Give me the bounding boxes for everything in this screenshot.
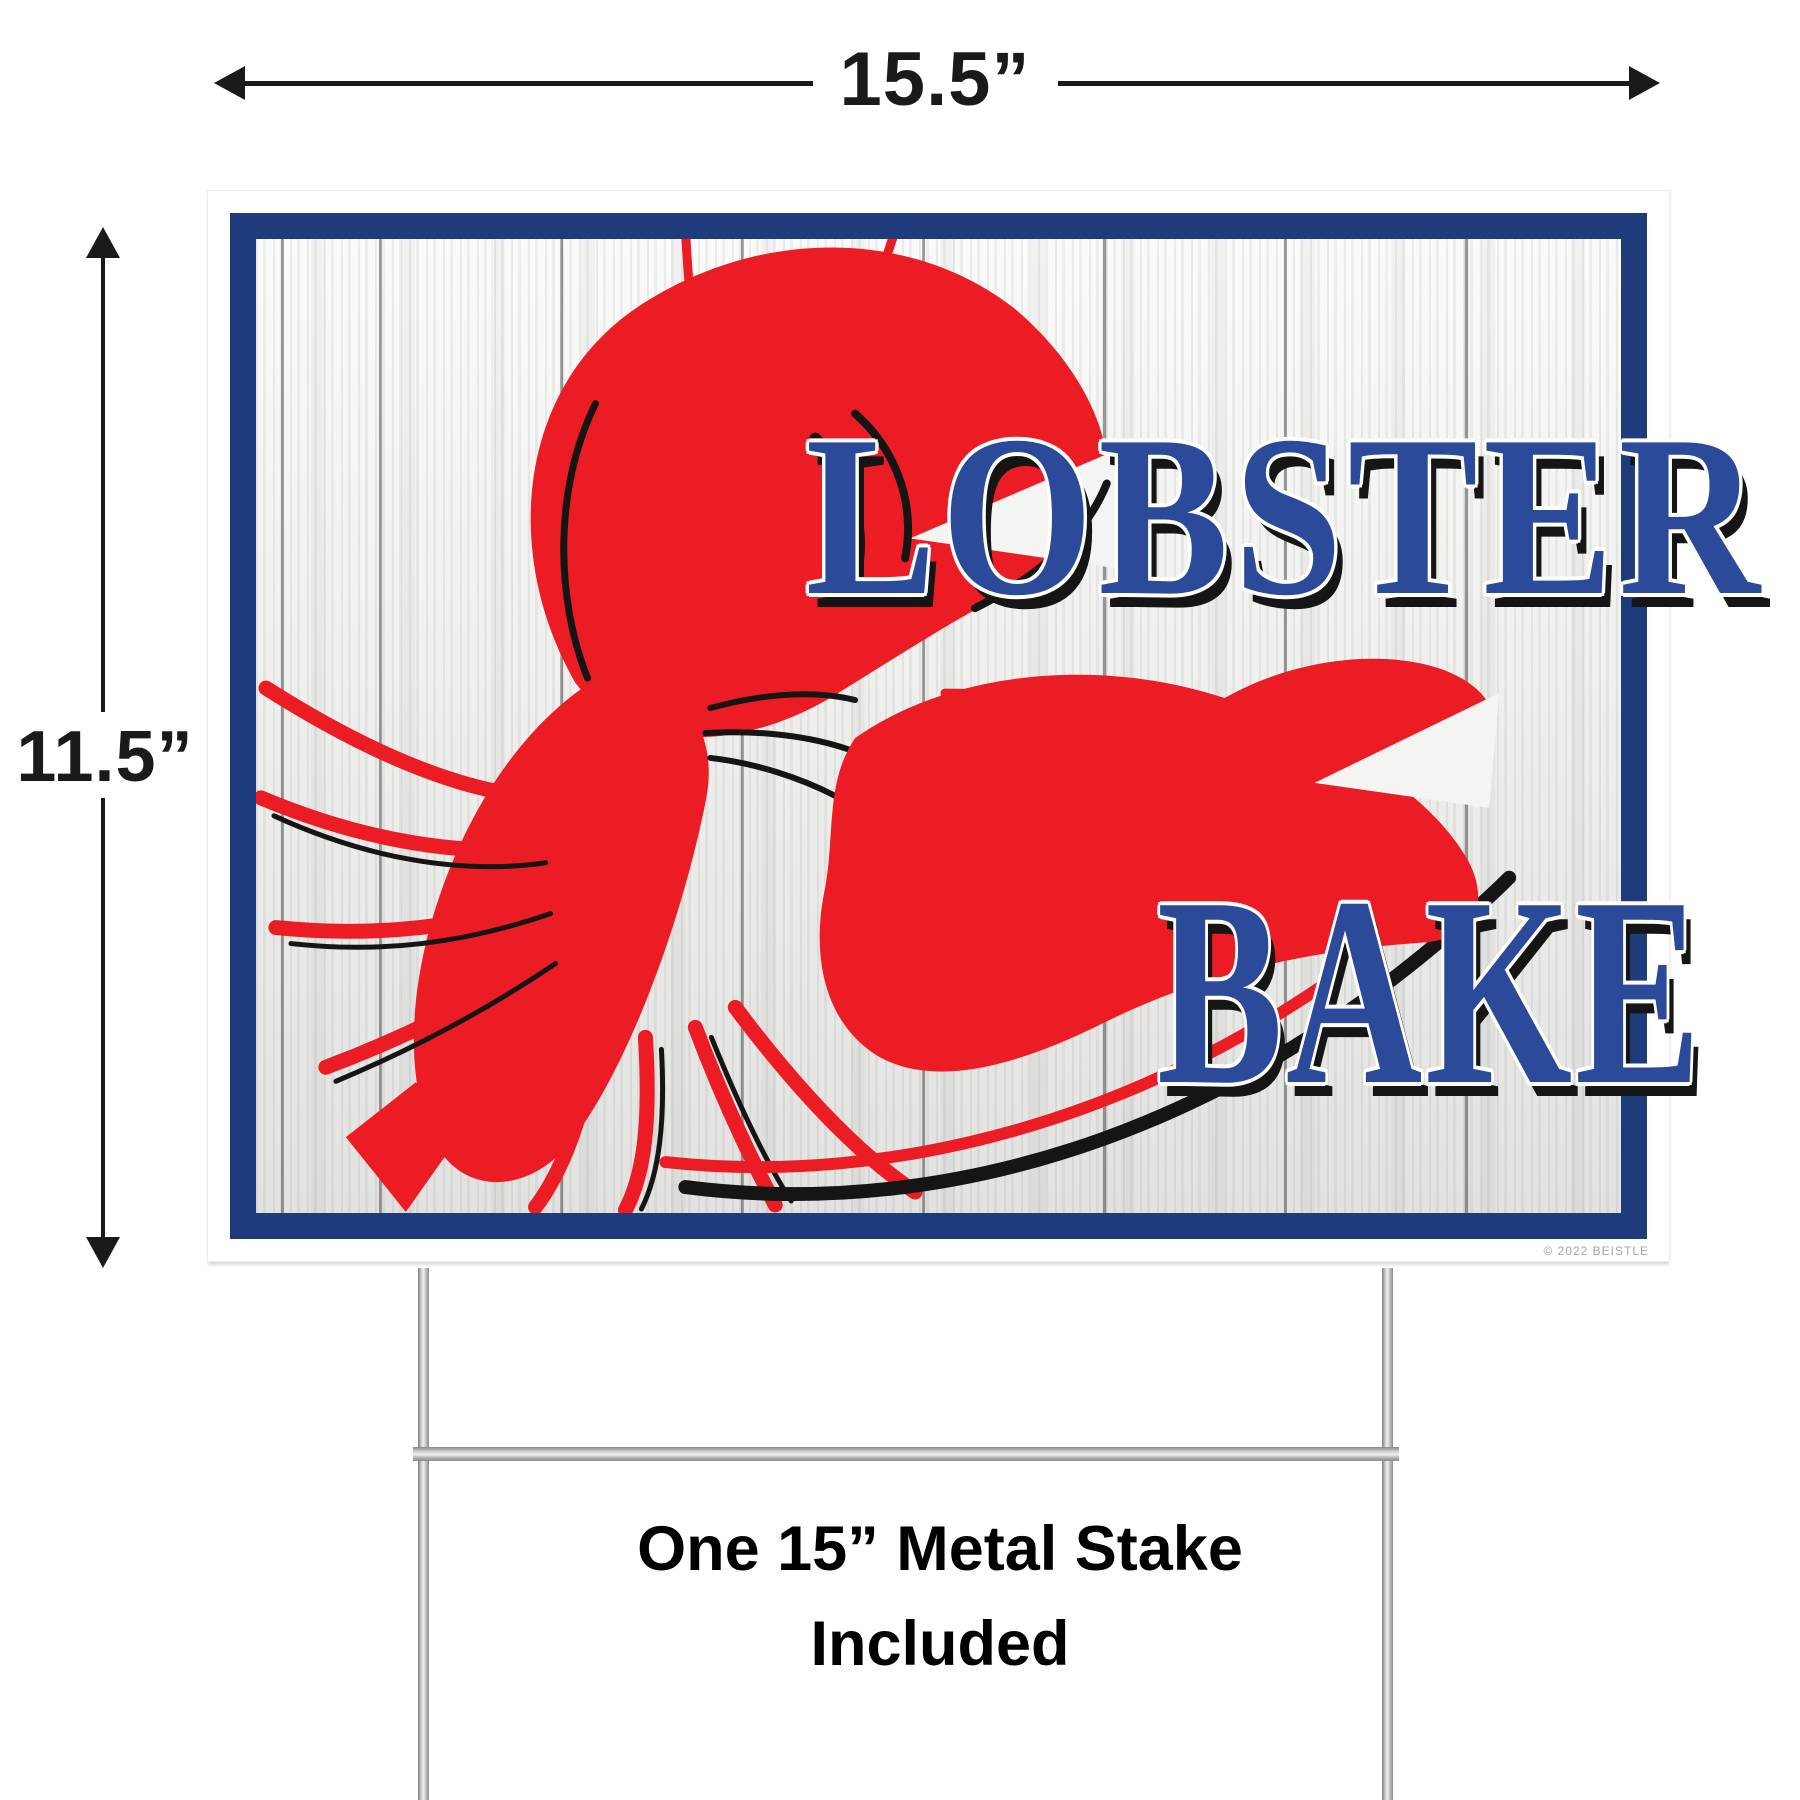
stake-caption-line1: One 15” Metal Stake bbox=[440, 1502, 1440, 1597]
arrowhead-up-icon bbox=[86, 227, 120, 258]
sign-title-bake: BAKE bbox=[1157, 857, 1521, 1127]
stake-left-leg bbox=[418, 1268, 429, 1800]
copyright-text: © 2022 BEISTLE bbox=[1543, 1244, 1649, 1258]
sign-title-lobster: LOBSTER bbox=[806, 401, 1618, 631]
sign-border: LOBSTER BAKE bbox=[230, 213, 1647, 1239]
stake-caption: One 15” Metal Stake Included bbox=[440, 1502, 1440, 1691]
stake-caption-line2: Included bbox=[440, 1597, 1440, 1692]
arrowhead-left-icon bbox=[214, 66, 245, 100]
product-image: 15.5” 11.5” bbox=[0, 0, 1800, 1800]
arrowhead-down-icon bbox=[86, 1237, 120, 1268]
height-dimension-line-bottom bbox=[101, 798, 105, 1239]
width-dimension-label: 15.5” bbox=[800, 36, 1070, 123]
width-dimension-line-left bbox=[243, 81, 813, 86]
arrowhead-right-icon bbox=[1629, 66, 1660, 100]
yard-sign: LOBSTER BAKE © 2022 BEISTLE bbox=[207, 190, 1670, 1262]
height-dimension-line-top bbox=[101, 256, 105, 712]
stake-crossbar bbox=[413, 1447, 1399, 1461]
height-dimension-label: 11.5” bbox=[0, 716, 210, 798]
width-dimension-line-right bbox=[1058, 81, 1632, 86]
